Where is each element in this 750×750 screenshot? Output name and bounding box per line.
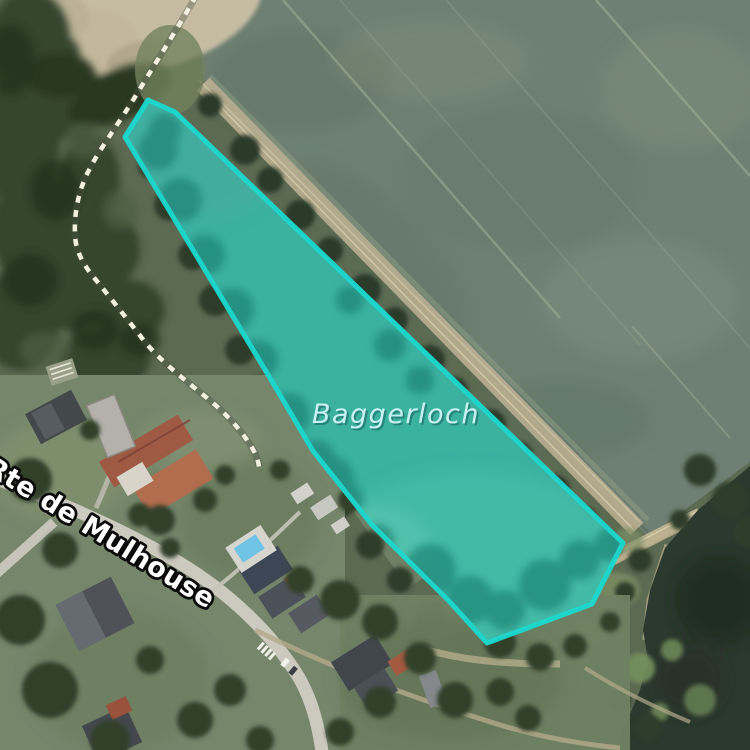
water-label: Baggerloch <box>312 399 480 430</box>
map-canvas[interactable]: Baggerloch Baggerloch Rte de Mulhouse <box>0 0 750 750</box>
satellite-map[interactable]: Baggerloch Baggerloch Rte de Mulhouse <box>0 0 750 750</box>
